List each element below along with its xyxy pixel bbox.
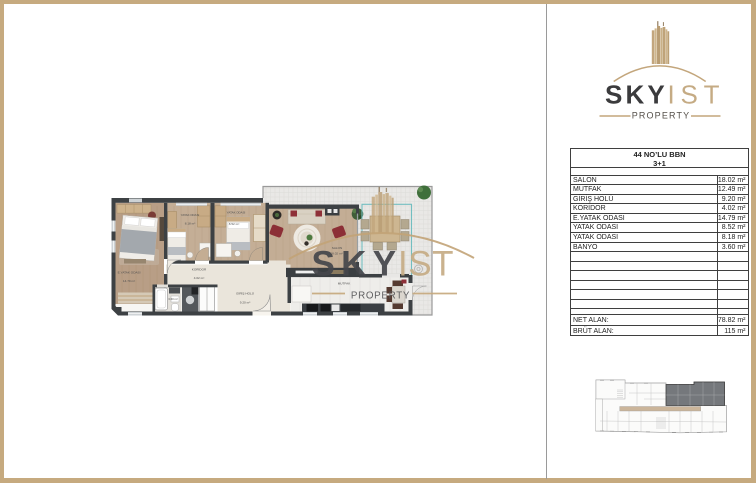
- svg-text:GİRİŞ HOLÜ: GİRİŞ HOLÜ: [236, 291, 254, 296]
- svg-text:4.02 m²: 4.02 m²: [194, 276, 205, 280]
- svg-text:IST: IST: [398, 245, 454, 284]
- svg-text:YATAK ODASI: YATAK ODASI: [181, 213, 200, 217]
- svg-text:8.18 m²: 8.18 m²: [185, 222, 196, 226]
- svg-text:BANYO: BANYO: [170, 289, 181, 293]
- svg-text:8.52 m²: 8.52 m²: [229, 222, 240, 226]
- svg-text:3.60 m²: 3.60 m²: [168, 297, 178, 301]
- svg-text:IST: IST: [668, 80, 726, 110]
- svg-text:9.20 m²: 9.20 m²: [240, 301, 251, 305]
- svg-text:SKY: SKY: [312, 245, 403, 284]
- svg-text:E.YATAK ODASI: E.YATAK ODASI: [118, 271, 141, 275]
- svg-text:YATAK ODASI: YATAK ODASI: [227, 211, 246, 215]
- svg-text:14.79 m²: 14.79 m²: [123, 279, 135, 283]
- svg-text:PROPERTY: PROPERTY: [351, 291, 410, 302]
- svg-text:SKY: SKY: [605, 80, 668, 110]
- svg-text:PROPERTY: PROPERTY: [632, 111, 691, 121]
- svg-text:KORİDOR: KORİDOR: [192, 267, 207, 272]
